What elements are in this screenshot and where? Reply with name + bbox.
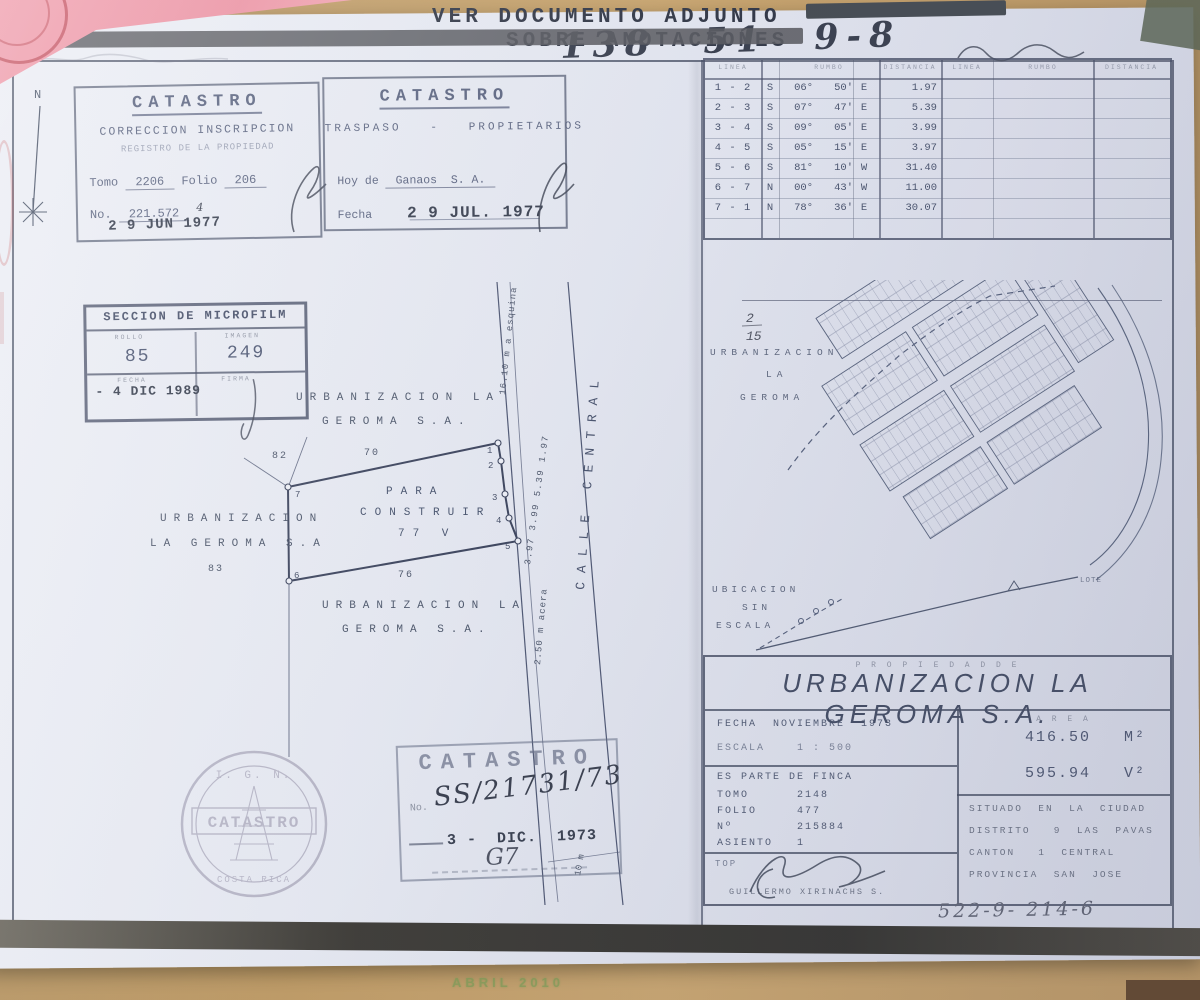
top-length-label: 70 xyxy=(364,448,380,459)
col-header-linea: LINEA xyxy=(705,64,761,71)
map-name-line2: LA xyxy=(766,369,787,380)
north-arrow-icon: N xyxy=(14,80,76,240)
catastro73-handwritten-note: G7 xyxy=(485,844,519,871)
owner-title: URBANIZACION LA GEROMA S.A. xyxy=(715,668,1160,730)
col-header-linea2: LINEA xyxy=(941,64,993,71)
survey-table: LINEA RUMBO DISTANCIA LINEA RUMBO DISTAN… xyxy=(703,58,1172,240)
map-name-line1: URBANIZACION xyxy=(710,347,838,358)
col-header-rumbo: RUMBO xyxy=(779,64,879,71)
ubicacion-line3: ESCALA xyxy=(716,620,774,631)
situado-line1: SITUADO EN LA CIUDAD xyxy=(969,803,1146,814)
col-header-distancia: DISTANCIA xyxy=(879,64,941,71)
ubicacion-line1: UBICACION xyxy=(712,584,799,595)
edge-distances-label: 3.97 3.99 5.39 1.97 xyxy=(523,434,551,565)
fecha-label: Fecha xyxy=(338,209,373,222)
col-header-distancia2: DISTANCIA xyxy=(1093,64,1170,71)
folio-label: Folio xyxy=(181,174,217,189)
survey-row: 5 - 6S81°10'W31.40 xyxy=(705,158,946,178)
situado-line2: DISTRITO 9 LAS PAVAS xyxy=(969,825,1154,836)
bottom-handwritten-ref: 522-9- 214-6 xyxy=(938,898,1096,923)
stamp1-subtitle2: REGISTRO DE LA PROPIEDAD xyxy=(77,141,319,156)
sidewalk-label: 2.50 m acera xyxy=(533,588,550,665)
col-header-rumbo2: RUMBO xyxy=(993,64,1093,71)
tomo-field: TOMO 2148 xyxy=(717,790,829,801)
map-handwritten-2: 2 xyxy=(746,311,754,326)
corner-5: 5 xyxy=(505,542,510,552)
neighbor-bottom-line2: GEROMA S.A. xyxy=(342,624,492,636)
corner-6: 6 xyxy=(294,571,299,581)
lot-83-label: 83 xyxy=(208,564,224,575)
neighbor-bottom-line1: URBANIZACION LA xyxy=(322,600,526,612)
tomo-value: 2206 xyxy=(125,174,174,190)
tomo-label: Tomo xyxy=(89,176,118,191)
stamp2-subtitle: TRASPASO - PROPIETARIOS xyxy=(325,121,565,136)
para-construir-line2: CONSTRUIR xyxy=(360,507,491,519)
survey-row: 7 - 1N78°36'E30.07 xyxy=(705,198,946,218)
stamp2-signature-icon xyxy=(532,158,578,238)
neighbor-top-line1: URBANIZACION LA xyxy=(296,392,500,404)
area-v2-value: 595.94 V² xyxy=(1025,765,1146,782)
no-suffix-handwritten: 4 xyxy=(196,201,203,214)
top-label: TOP xyxy=(715,859,737,869)
corner-4: 4 xyxy=(496,516,501,526)
location-map: 2 15 URBANIZACION LA GEROMA xyxy=(705,280,1167,653)
corner-1: 1 xyxy=(487,446,492,456)
map-name-line3: GEROMA xyxy=(740,392,804,403)
bottom-length-label: 76 xyxy=(398,570,414,581)
neighbor-left-line2: LA GEROMA S.A xyxy=(150,538,327,550)
street-name-label: CALLE CENTRAL xyxy=(573,371,603,590)
owner-label: Hoy de xyxy=(337,175,379,188)
para-construir-line3: 77 V xyxy=(398,528,456,540)
survey-row: 3 - 4S09°05'E3.99 xyxy=(705,118,946,138)
finca-field: ES PARTE DE FINCA xyxy=(717,772,853,783)
seal-org-label: I. G. N. xyxy=(216,770,293,782)
survey-row: 4 - 5S05°15'E3.97 xyxy=(705,138,946,158)
stamp1-date: 2 9 JUN 1977 xyxy=(108,215,221,235)
catastro73-date: 3 - DIC. 1973 xyxy=(447,827,598,849)
seal-name-label: CATASTRO xyxy=(208,814,301,832)
survey-row: 6 - 7N00°43'W11.00 xyxy=(705,178,946,198)
para-construir-line1: PARA xyxy=(386,486,444,498)
folio-field: FOLIO 477 xyxy=(717,806,821,817)
owner-value: Ganaos S. A. xyxy=(386,173,496,188)
desk-printed-text: ABRIL 2010 xyxy=(452,975,564,990)
map-lote-label: LOTE xyxy=(1080,577,1102,585)
stamp2-title: CATASTRO xyxy=(379,86,509,109)
neighbor-left-line1: URBANIZACION xyxy=(160,513,323,525)
surveyor-signature-icon xyxy=(745,847,895,902)
folio-value: 206 xyxy=(224,173,266,189)
lot-82-label: 82 xyxy=(272,451,288,462)
map-handwritten-15: 15 xyxy=(746,329,762,344)
stamp1-subtitle: CORRECCION INSCRIPCION xyxy=(76,122,318,140)
situado-line4: PROVINCIA SAN JOSE xyxy=(969,869,1123,880)
ign-catastro-seal-icon: I. G. N. CATASTRO COSTA RICA xyxy=(172,742,337,907)
faint-note-scribble-icon xyxy=(28,50,238,70)
stamp-catastro-1973: CATASTRO No. SS/21731/73 3 - DIC. 1973 G… xyxy=(396,738,623,882)
escala-field: ESCALA 1 : 500 xyxy=(717,743,853,754)
survey-row: 1 - 2S06°50'E1.97 xyxy=(705,78,946,98)
corner-7: 7 xyxy=(295,490,300,500)
situado-line3: CANTON 1 CENTRAL xyxy=(969,847,1115,858)
area-m2-value: 416.50 M² xyxy=(1025,729,1146,746)
stamp1-title: CATASTRO xyxy=(132,92,262,116)
stamp-traspaso-propietarios: CATASTRO TRASPASO - PROPIETARIOS Hoy de … xyxy=(322,75,568,232)
ubicacion-line2: SIN xyxy=(742,602,771,613)
corner-3: 3 xyxy=(492,493,497,503)
north-label: N xyxy=(34,88,41,102)
map-bottom-boundary xyxy=(756,577,1078,650)
map-lot-blocks xyxy=(789,280,1150,543)
red-edge-mark2 xyxy=(0,292,4,344)
desk-object xyxy=(1126,980,1200,1000)
corner-2: 2 xyxy=(488,461,493,471)
seal-country-label: COSTA RICA xyxy=(217,875,291,885)
survey-row: 2 - 3S07°47'E5.39 xyxy=(705,98,946,118)
numero-field: Nº 215884 xyxy=(717,822,845,833)
scanned-cadastral-plan-photo: VER DOCUMENTO ADJUNTO SOBRE ANOTACIONES … xyxy=(0,0,1200,1000)
neighbor-top-line2: GEROMA S.A. xyxy=(322,416,472,428)
catastro73-no-label: No. xyxy=(410,803,428,815)
